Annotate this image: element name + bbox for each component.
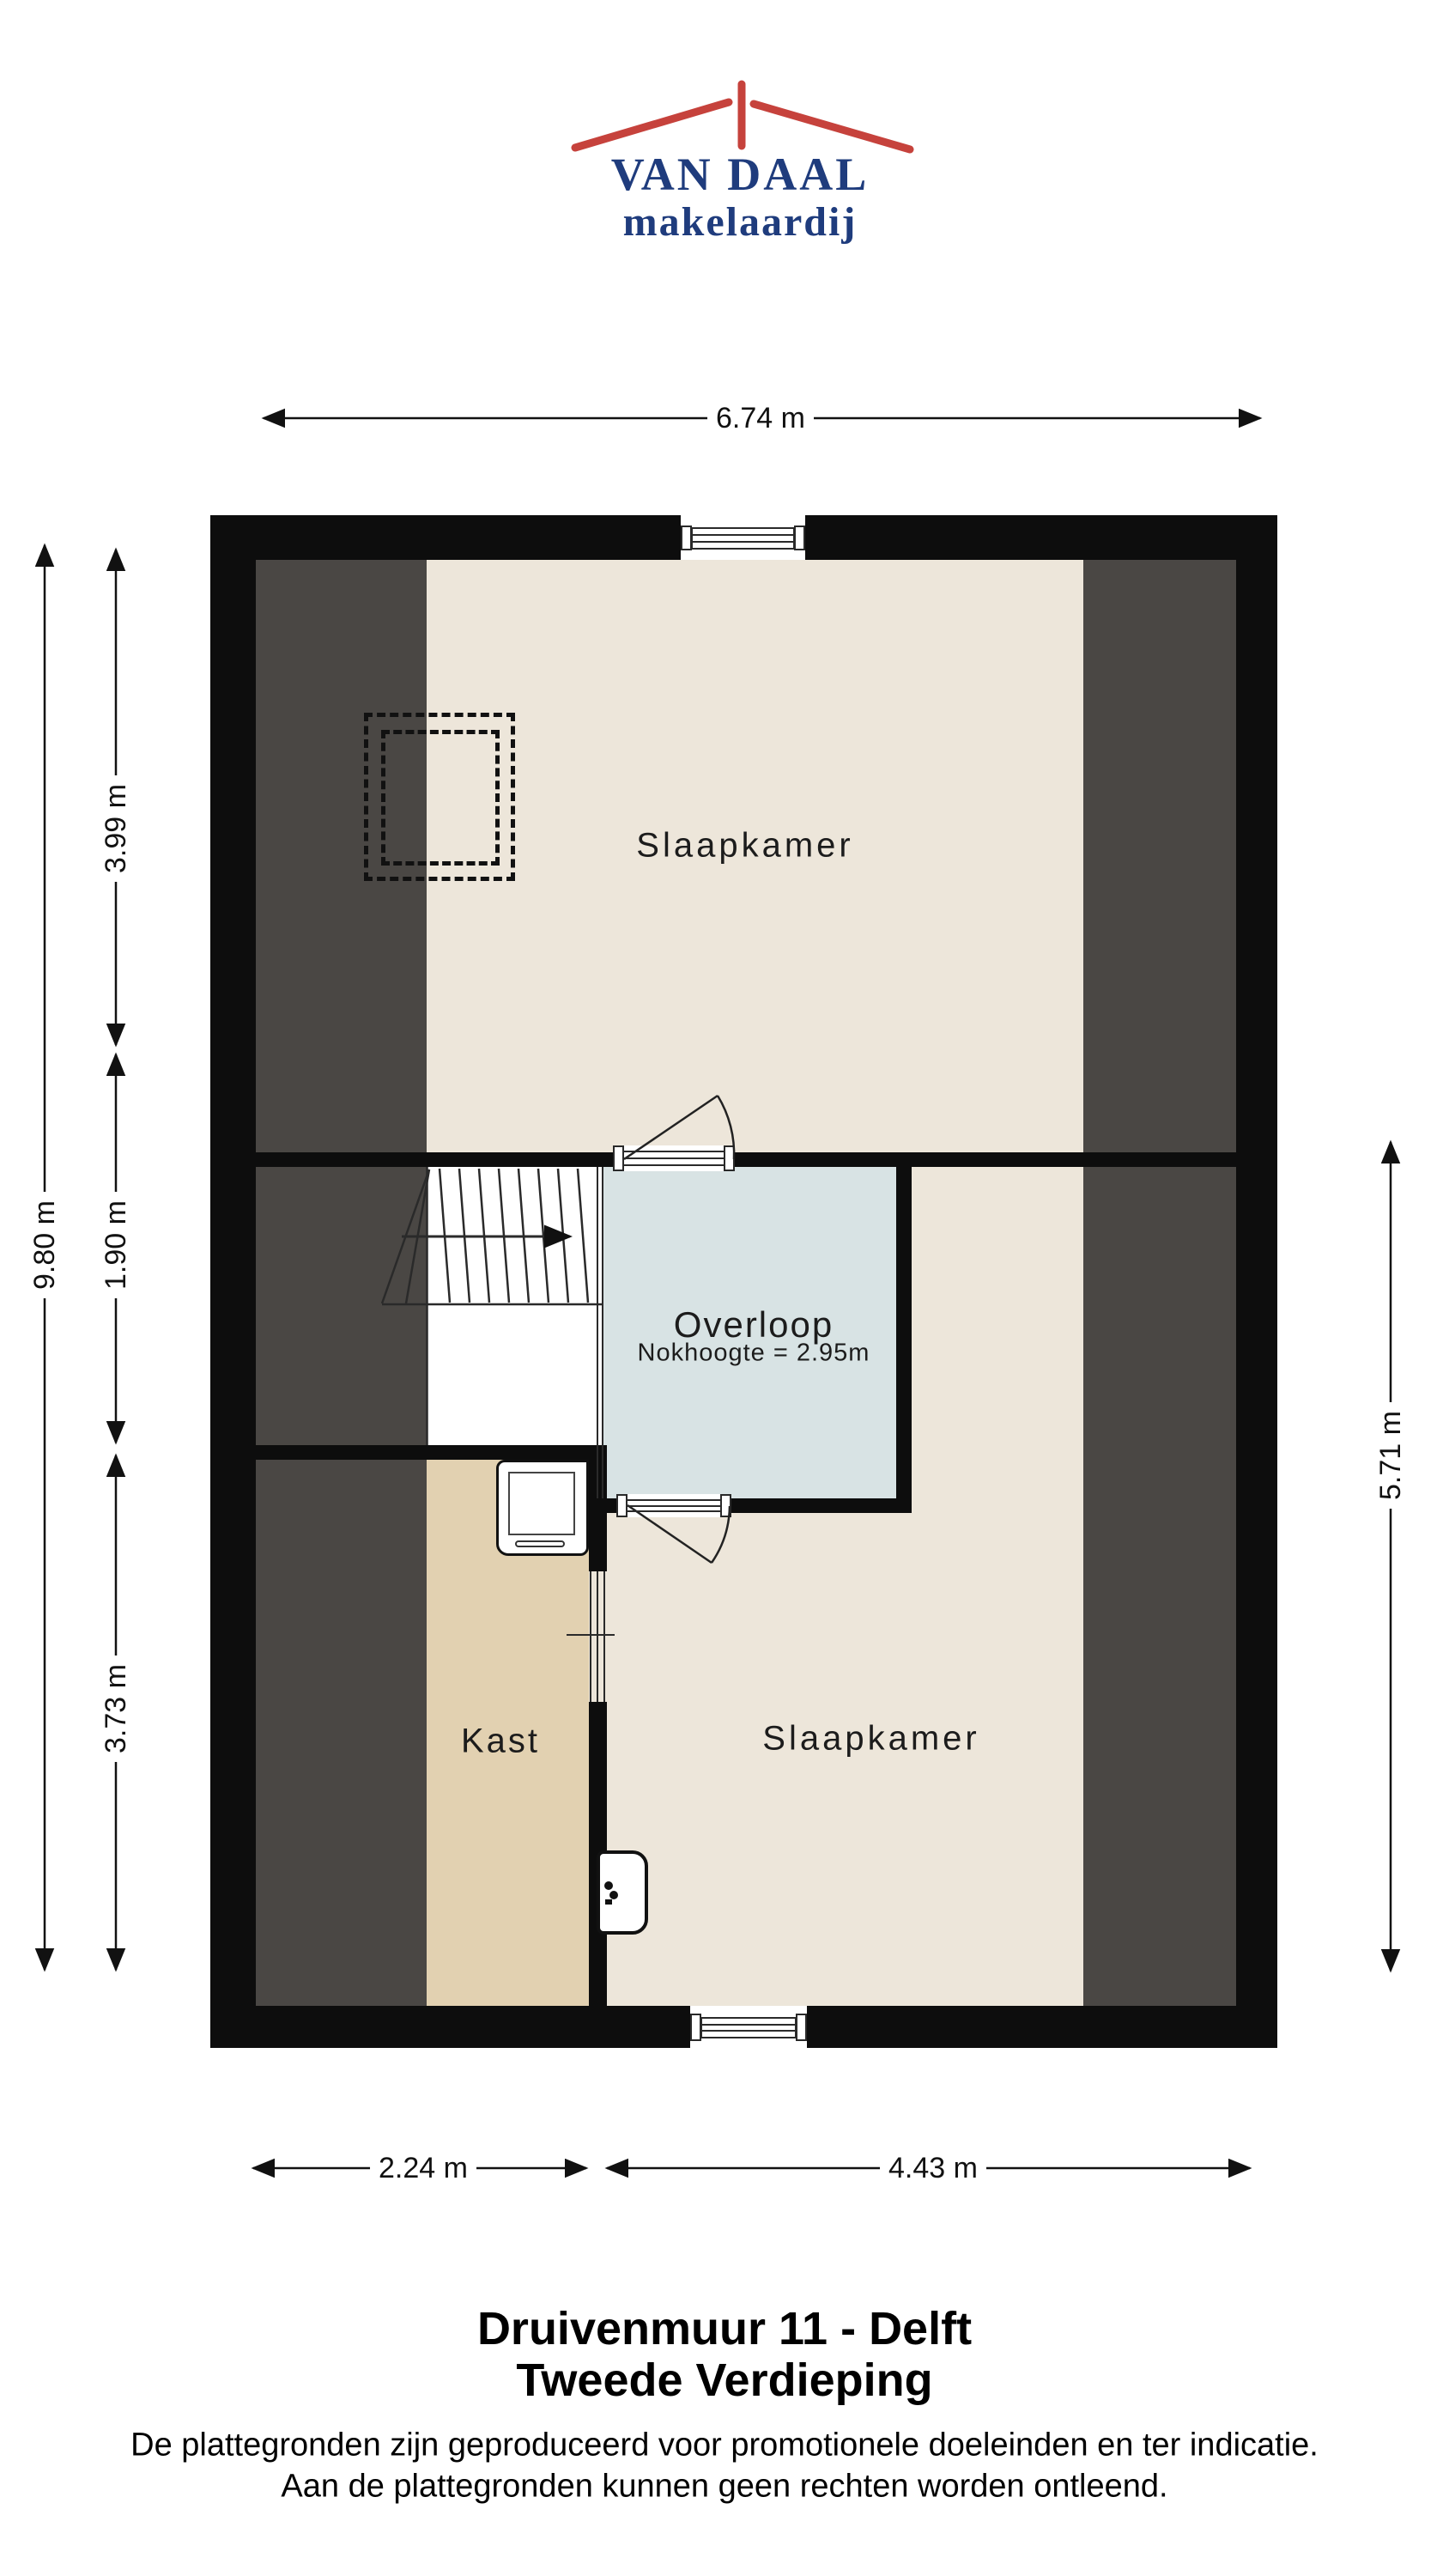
sink-icon — [597, 1850, 648, 1935]
footer-disclaimer-line1: De plattegronden zijn geproduceerd voor … — [130, 2427, 1319, 2464]
wall-kast-top — [253, 1445, 607, 1460]
window-bottom-jamb-right — [796, 2014, 807, 2041]
footer-title-line2: Tweede Verdieping — [516, 2354, 932, 2407]
room-label-bedroom-top: Slaapkamer — [636, 827, 853, 866]
dim-bottom-right: 4.43 m — [880, 2152, 986, 2184]
outer-wall-top-right — [805, 515, 1277, 560]
logo-name: VAN DAAL — [611, 148, 870, 201]
dim-left-bottom: 3.73 m — [100, 1656, 132, 1762]
dim-left-total: 9.80 m — [28, 1192, 61, 1298]
boiler-grille — [515, 1540, 565, 1547]
room-label-bedroom-bottom: Slaapkamer — [762, 1720, 979, 1759]
door-jamb — [616, 1494, 627, 1517]
door-frame-overloop-bottom — [616, 1494, 731, 1517]
window-bottom-jamb-left — [690, 2014, 701, 2041]
door-jamb — [720, 1494, 731, 1517]
sloped-ceiling-right — [1083, 560, 1236, 2006]
door-frame-overloop-top — [613, 1145, 735, 1171]
dim-left-middle: 1.90 m — [100, 1192, 132, 1298]
window-bottom-opening — [690, 2006, 807, 2048]
dim-left-top: 3.99 m — [100, 775, 132, 882]
window-top-jamb-right — [794, 526, 805, 550]
outer-wall-bottom-left — [210, 2006, 690, 2048]
logo-subtitle: makelaardij — [623, 198, 858, 246]
outer-wall-bottom-right — [807, 2006, 1277, 2048]
dim-top-width: 6.74 m — [707, 402, 814, 434]
dim-bottom-left: 2.24 m — [370, 2152, 476, 2184]
wall-middle-left — [253, 1152, 613, 1167]
door-jamb — [724, 1145, 735, 1171]
stairwell-area — [427, 1167, 603, 1445]
agency-logo: VAN DAAL makelaardij — [0, 0, 1449, 258]
wall-overloop-right — [896, 1152, 912, 1513]
footer-title-line1: Druivenmuur 11 - Delft — [477, 2302, 972, 2355]
wall-middle-right — [735, 1152, 1236, 1167]
room-label-kast: Kast — [461, 1722, 540, 1761]
wall-kast-right-upper — [589, 1460, 607, 1571]
window-top-jamb-left — [681, 526, 692, 550]
dashed-void-outline-inner — [381, 730, 500, 866]
outer-wall-left — [210, 515, 256, 2048]
wall-overloop-bottom-right — [731, 1498, 912, 1513]
window-top-opening — [681, 515, 805, 560]
boiler-inner-panel — [508, 1472, 575, 1535]
outer-wall-top-left — [210, 515, 681, 560]
door-jamb — [613, 1145, 624, 1171]
dim-right-height: 5.71 m — [1374, 1402, 1407, 1509]
footer-disclaimer-line2: Aan de plattegronden kunnen geen rechten… — [281, 2469, 1167, 2506]
room-label-overloop-note: Nokhoogte = 2.95m — [638, 1340, 870, 1368]
outer-wall-right — [1236, 515, 1277, 2048]
floorplan-page: VAN DAAL makelaardij — [0, 0, 1449, 2576]
